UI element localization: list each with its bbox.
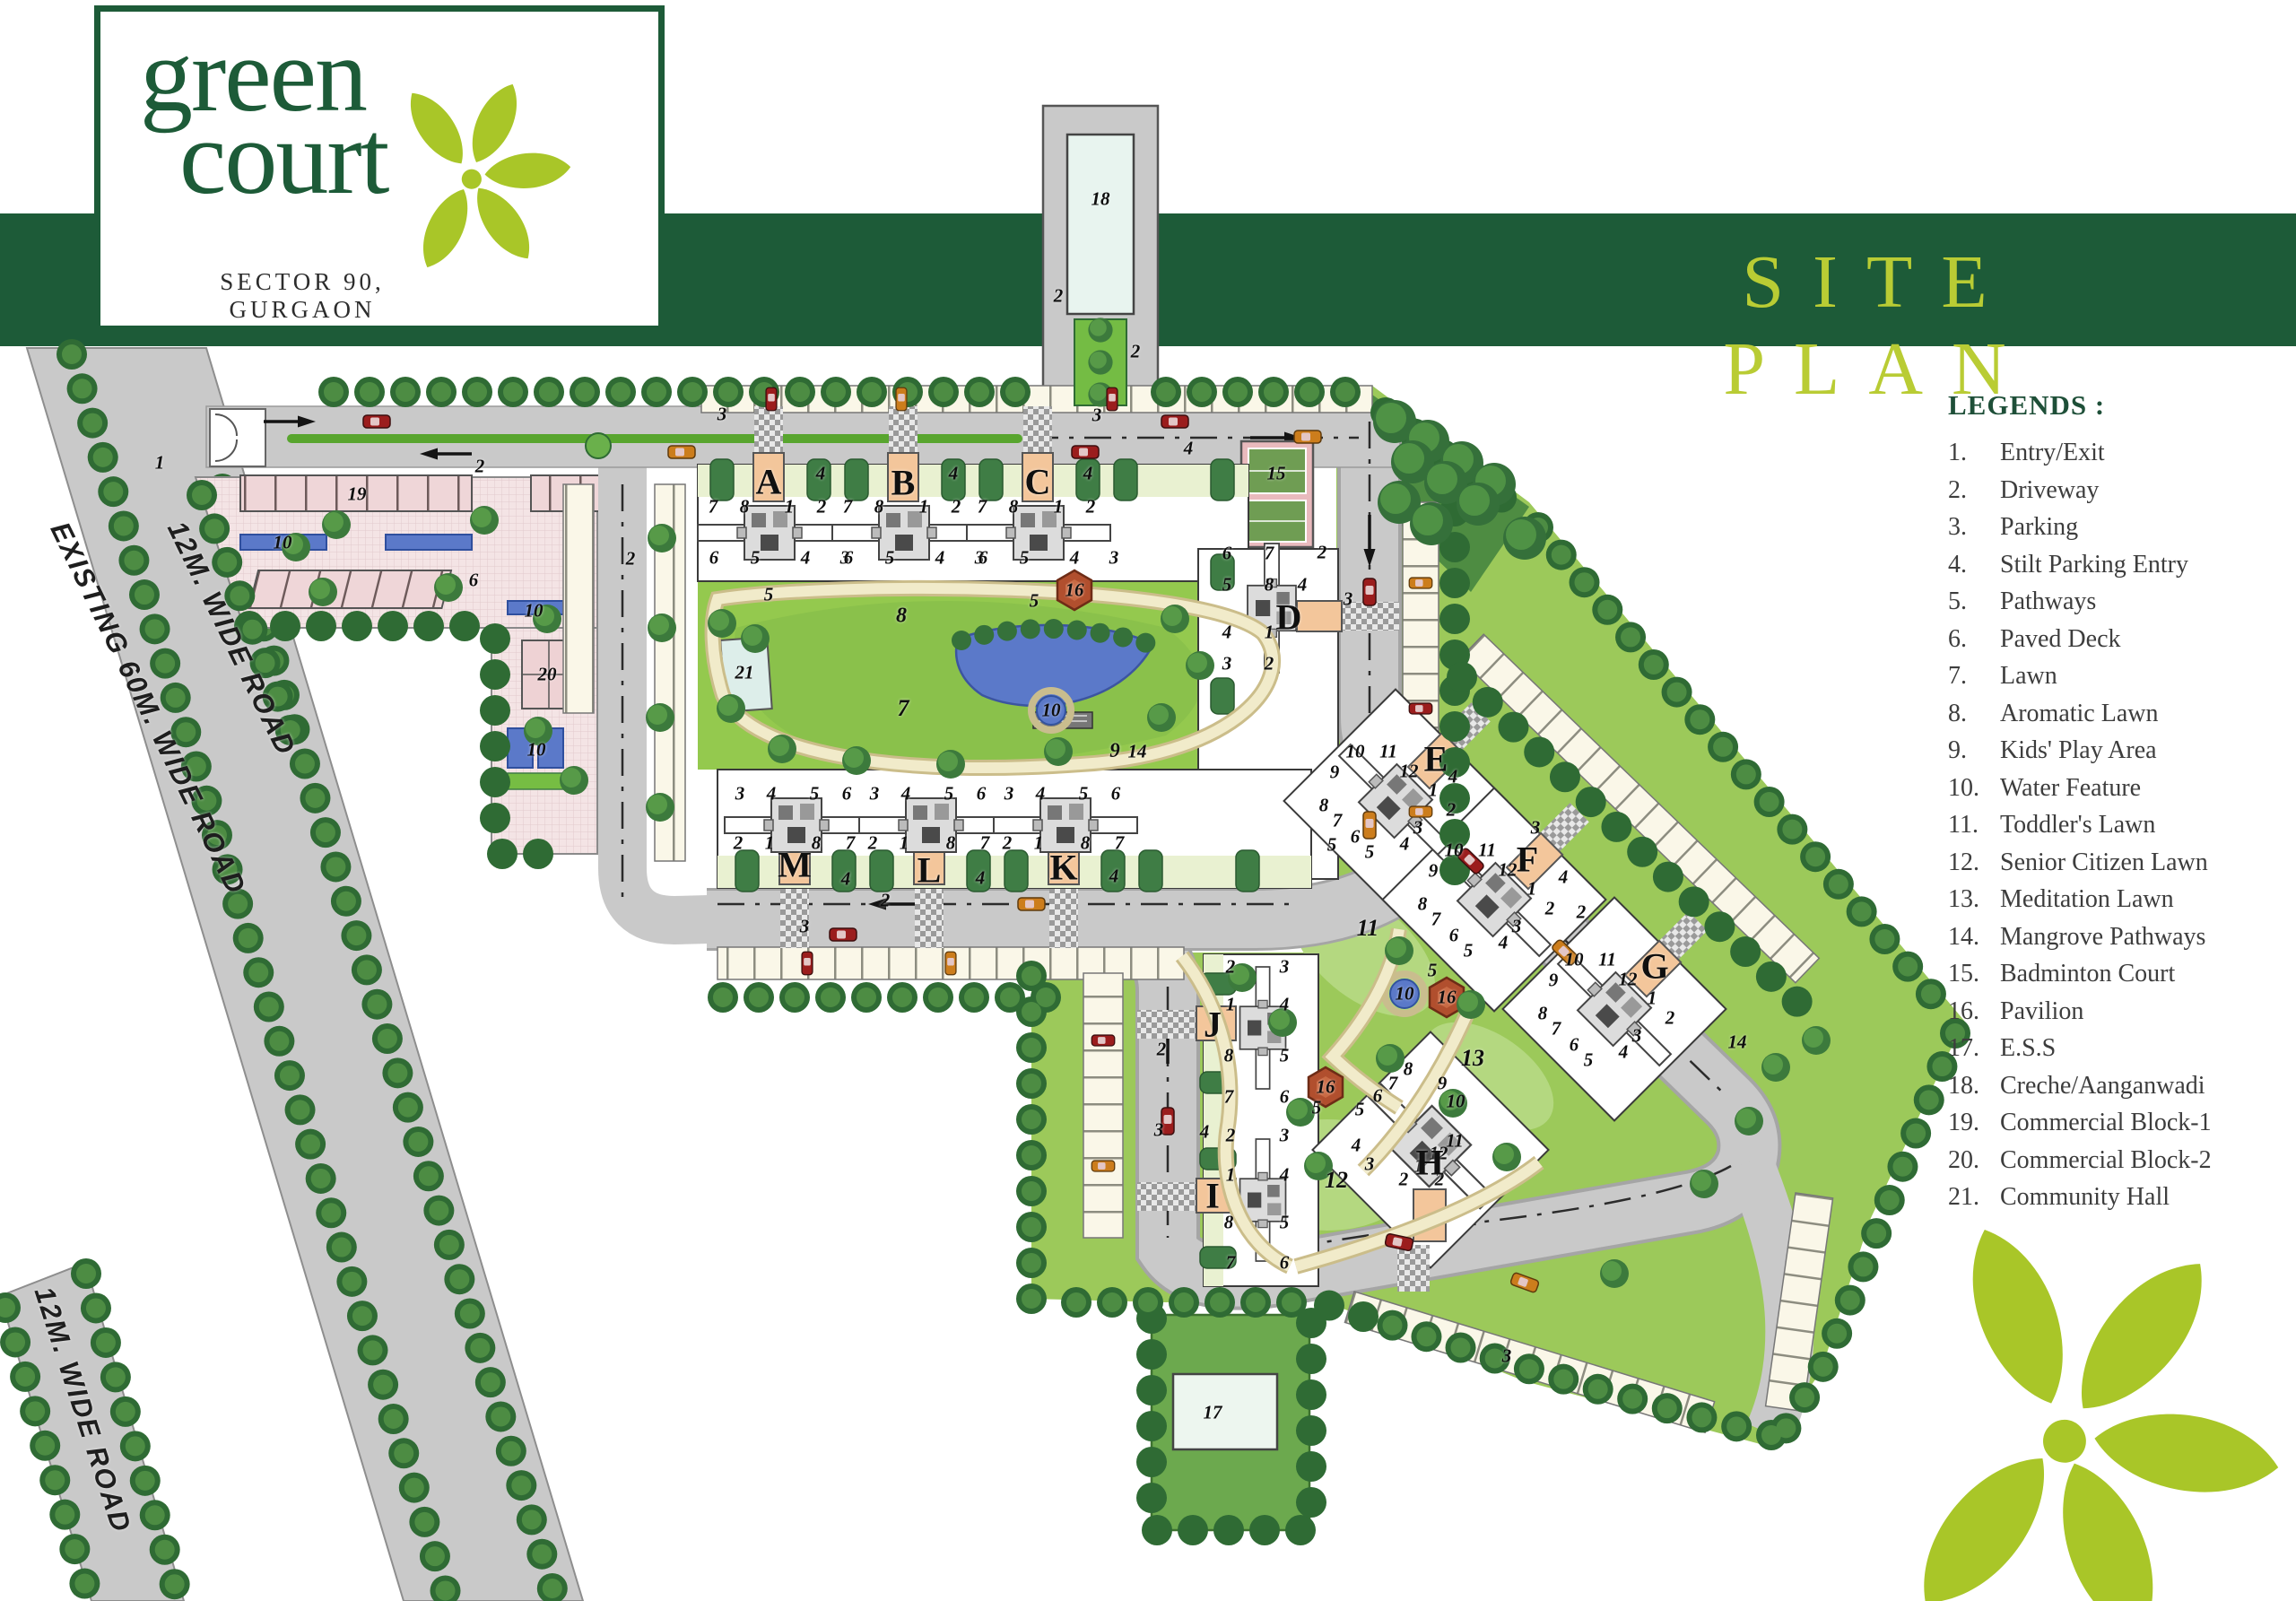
legend-item: 19.Commercial Block-1 (1948, 1104, 2294, 1142)
legend-item: 12.Senior Citizen Lawn (1948, 844, 2294, 882)
legend-item-number: 10. (1948, 770, 2000, 807)
legend-item-number: 16. (1948, 993, 2000, 1031)
legend-item: 11.Toddler's Lawn (1948, 806, 2294, 844)
legend-item-number: 18. (1948, 1067, 2000, 1105)
page-title: SITE PLAN (1565, 239, 2193, 413)
legend-item-number: 4. (1948, 546, 2000, 584)
legend-item-number: 15. (1948, 955, 2000, 993)
legend-item-label: Senior Citizen Lawn (2000, 844, 2294, 882)
legend-item: 20.Commercial Block-2 (1948, 1142, 2294, 1179)
legend-item-number: 11. (1948, 806, 2000, 844)
logo: green court SECTOR 90, GURGAON (94, 5, 665, 332)
legend-item-number: 17. (1948, 1030, 2000, 1067)
ess-building (1173, 1374, 1277, 1449)
pavilion-icon (1057, 570, 1091, 610)
legend-panel: LEGENDS : 1.Entry/Exit2.Driveway3.Parkin… (1948, 389, 2294, 1216)
legend-item-number: 5. (1948, 583, 2000, 621)
legend-item-label: Entry/Exit (2000, 434, 2294, 472)
logo-flower-icon (362, 55, 578, 297)
site-plan-poster: green court SECTOR 90, GURGAON SITE PLAN… (0, 0, 2296, 1601)
legend-title: LEGENDS : (1948, 389, 2294, 422)
legend-item-label: Meditation Lawn (2000, 881, 2294, 918)
legend-item-number: 1. (1948, 434, 2000, 472)
legend-item: 8.Aromatic Lawn (1948, 695, 2294, 733)
legend-item-number: 2. (1948, 472, 2000, 509)
legend-item-number: 12. (1948, 844, 2000, 882)
entry-gate (210, 409, 265, 466)
legend-item-number: 6. (1948, 621, 2000, 658)
legend-item-label: Pathways (2000, 583, 2294, 621)
legend-item: 9.Kids' Play Area (1948, 732, 2294, 770)
legend-item-label: Parking (2000, 509, 2294, 546)
legend-item-label: Mangrove Pathways (2000, 918, 2294, 956)
legend-item-number: 7. (1948, 657, 2000, 695)
legend-item-number: 14. (1948, 918, 2000, 956)
legend-item-label: Commercial Block-2 (2000, 1142, 2294, 1179)
legend-item: 15.Badminton Court (1948, 955, 2294, 993)
legend-item-label: Toddler's Lawn (2000, 806, 2294, 844)
legend-item-label: Pavilion (2000, 993, 2294, 1031)
legend-item: 7.Lawn (1948, 657, 2294, 695)
legend-item-number: 20. (1948, 1142, 2000, 1179)
legend-item-label: Water Feature (2000, 770, 2294, 807)
legend-item: 17.E.S.S (1948, 1030, 2294, 1067)
legend-item-number: 13. (1948, 881, 2000, 918)
legend-item: 1.Entry/Exit (1948, 434, 2294, 472)
legend-item-label: Stilt Parking Entry (2000, 546, 2294, 584)
legend-items: 1.Entry/Exit2.Driveway3.Parking4.Stilt P… (1948, 434, 2294, 1216)
legend-item-label: Driveway (2000, 472, 2294, 509)
legend-item-label: Paved Deck (2000, 621, 2294, 658)
commercial-block-1-stalls (240, 475, 472, 511)
creche-building (1067, 135, 1134, 314)
legend-item-number: 19. (1948, 1104, 2000, 1142)
legend-item: 4.Stilt Parking Entry (1948, 546, 2294, 584)
legend-item-label: Commercial Block-1 (2000, 1104, 2294, 1142)
legend-item: 2.Driveway (1948, 472, 2294, 509)
legend-item: 18.Creche/Aanganwadi (1948, 1067, 2294, 1105)
legend-item: 10.Water Feature (1948, 770, 2294, 807)
legend-item: 16.Pavilion (1948, 993, 2294, 1031)
legend-item-number: 8. (1948, 695, 2000, 733)
legend-item: 14.Mangrove Pathways (1948, 918, 2294, 956)
legend-item-label: Kids' Play Area (2000, 732, 2294, 770)
pavilion-icon (1309, 1067, 1343, 1107)
legend-item-number: 3. (1948, 509, 2000, 546)
legend-item-label: Lawn (2000, 657, 2294, 695)
legend-item: 13.Meditation Lawn (1948, 881, 2294, 918)
logo-subtitle: SECTOR 90, GURGAON (163, 268, 441, 324)
legend-item-label: Aromatic Lawn (2000, 695, 2294, 733)
legend-item-label: E.S.S (2000, 1030, 2294, 1067)
legend-item-number: 9. (1948, 732, 2000, 770)
logo-text-court: court (179, 105, 387, 211)
legend-item-label: Badminton Court (2000, 955, 2294, 993)
legend-item: 6.Paved Deck (1948, 621, 2294, 658)
legend-item: 5.Pathways (1948, 583, 2294, 621)
legend-item: 3.Parking (1948, 509, 2294, 546)
legend-item-label: Creche/Aanganwadi (2000, 1067, 2294, 1105)
brand-flower-icon (1830, 1202, 2296, 1601)
